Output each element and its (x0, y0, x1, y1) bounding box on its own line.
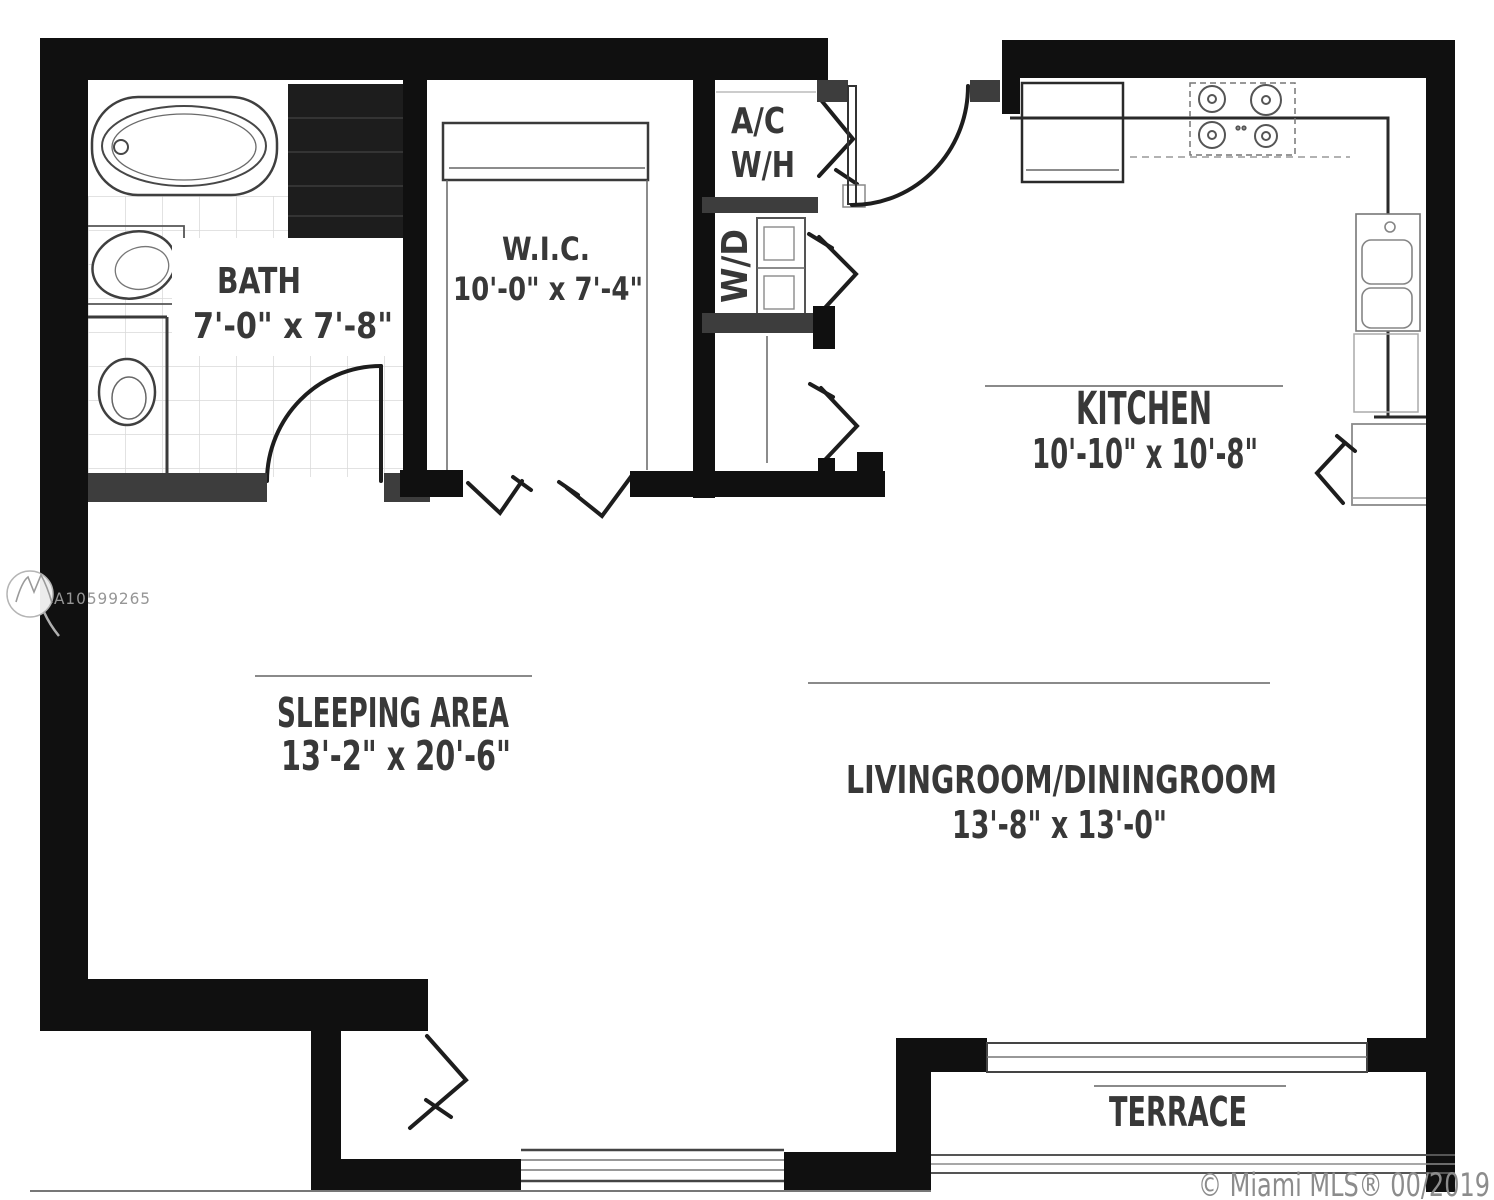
entry-jamb-right (970, 80, 1000, 102)
terrace-jamb-right (1367, 1038, 1428, 1072)
entry-jamb-left (817, 80, 848, 102)
sleeping-label: SLEEPING AREA (277, 689, 509, 737)
kitchen-entry-jamb (1002, 78, 1020, 114)
living-dims: 13'-8" x 13'-0" (952, 803, 1167, 847)
sleeping-dims: 13'-2" x 20'-6" (281, 732, 511, 780)
terrace-label: TERRACE (1109, 1088, 1247, 1136)
bath-dark-tile-block (288, 84, 406, 242)
bath-room: BATH 7'-0" x 7'-8" (85, 84, 410, 481)
wic-bottom-wall-left (400, 470, 463, 497)
living-label: LIVINGROOM/DININGROOM (846, 758, 1277, 802)
bath-bottom-wall (88, 473, 267, 502)
closet-jamb-1 (813, 306, 835, 349)
ac-label: A/C (731, 101, 785, 142)
wh-label: W/H (731, 145, 795, 186)
wd-linen-divider-wall (702, 313, 818, 333)
kitchen-cabinet (1022, 83, 1123, 182)
terrace-jamb-left (896, 1038, 987, 1072)
right-wall (1426, 40, 1455, 1192)
bathtub-icon (92, 97, 277, 195)
kitchen-dims: 10'-10" x 10'-8" (1032, 430, 1258, 478)
wic-right-wall (693, 78, 715, 498)
ac-wd-divider-wall (702, 197, 818, 213)
top-wall-left (40, 38, 828, 80)
watermark-id: A10599265 (54, 589, 151, 608)
sleeping-step-wall-v (311, 1031, 341, 1190)
bath-label: BATH (217, 261, 301, 302)
kitchen-label: KITCHEN (1076, 382, 1212, 435)
hall-wall-stub (857, 452, 883, 497)
bath-dims: 7'-0" x 7'-8" (193, 306, 393, 347)
floor-plan-page: BATH 7'-0" x 7'-8" W.I.C. 10'-0" x 7'-4"… (0, 0, 1494, 1200)
wd-label: W/D (715, 229, 756, 303)
wic-shelf (443, 123, 648, 180)
wic-dims: 10'-0" x 7'-4" (453, 270, 643, 308)
wic-left-wall (403, 80, 427, 500)
mls-logo-circle (7, 571, 53, 617)
kitchen-sink-icon (1356, 214, 1420, 331)
toilet-icon (99, 359, 155, 425)
wic-label: W.I.C. (502, 230, 590, 268)
top-wall-right (1002, 40, 1455, 78)
bottom-wall-left (341, 1159, 521, 1190)
terrace-sliding-door (987, 1043, 1367, 1072)
hall-bottom-wall (630, 471, 885, 497)
mls-credit: © Miami MLS® 00/2019 (1198, 1166, 1490, 1200)
floor-plan-drawing: BATH 7'-0" x 7'-8" W.I.C. 10'-0" x 7'-4"… (0, 0, 1494, 1200)
left-wall (40, 38, 88, 1031)
sleeping-step-wall-h (40, 979, 428, 1031)
